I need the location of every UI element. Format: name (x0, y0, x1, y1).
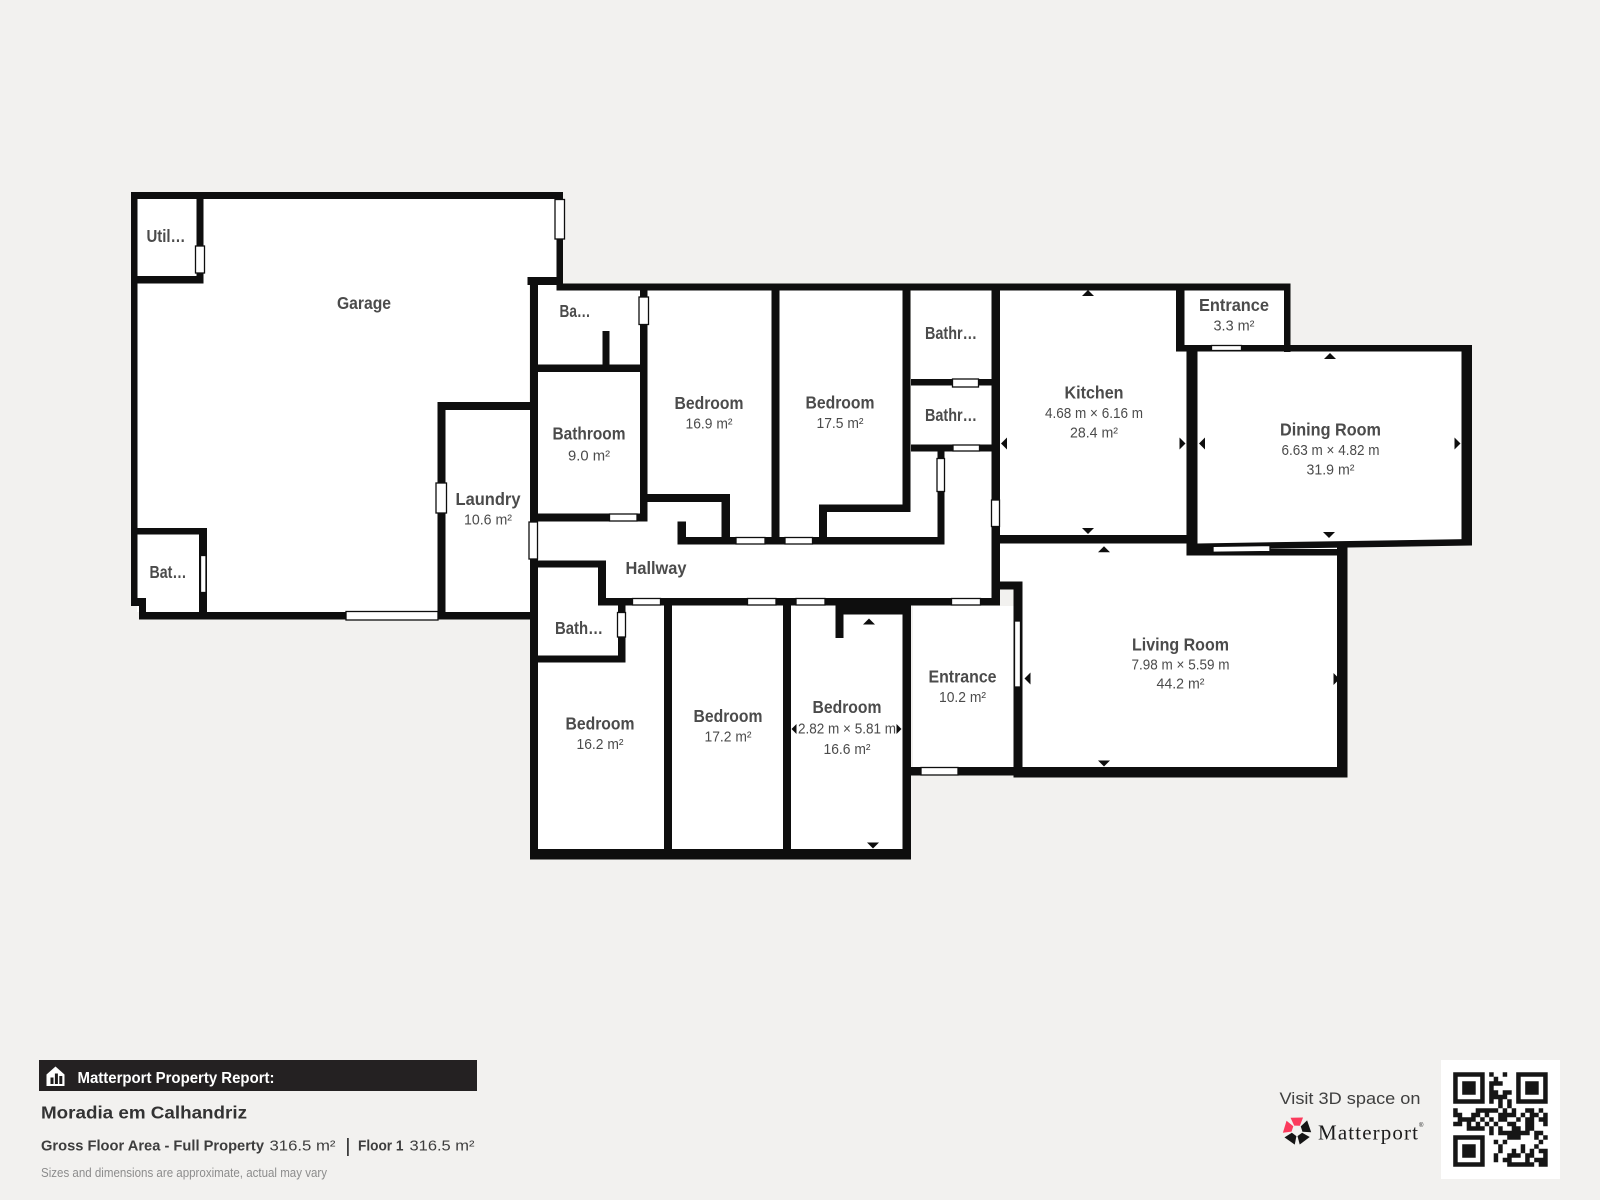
svg-text:316.5 m²: 316.5 m² (270, 1139, 336, 1155)
svg-text:Gross Floor Area - Full Proper: Gross Floor Area - Full Property (41, 1139, 264, 1155)
svg-text:16.9 m²: 16.9 m² (686, 417, 733, 433)
svg-text:28.4 m²: 28.4 m² (1070, 426, 1118, 442)
svg-text:316.5 m²: 316.5 m² (410, 1139, 475, 1155)
svg-text:Living Room: Living Room (1132, 635, 1229, 655)
svg-text:4.68 m × 6.16 m: 4.68 m × 6.16 m (1045, 406, 1143, 422)
svg-text:Kitchen: Kitchen (1065, 383, 1124, 403)
svg-text:Bathr…: Bathr… (925, 323, 977, 343)
svg-text:Hallway: Hallway (626, 558, 687, 578)
svg-text:®: ® (1419, 1122, 1424, 1129)
svg-text:Entrance: Entrance (1199, 295, 1269, 315)
svg-text:9.0 m²: 9.0 m² (568, 449, 610, 465)
svg-text:Bat…: Bat… (150, 562, 187, 582)
svg-text:6.63 m × 4.82 m: 6.63 m × 4.82 m (1282, 443, 1380, 459)
svg-text:17.2 m²: 17.2 m² (705, 730, 752, 746)
svg-text:Bath…: Bath… (555, 618, 603, 638)
svg-text:Sizes and dimensions are appro: Sizes and dimensions are approximate, ac… (41, 1166, 328, 1180)
svg-text:Bedroom: Bedroom (806, 393, 875, 413)
svg-text:31.9 m²: 31.9 m² (1307, 463, 1355, 479)
svg-text:44.2 m²: 44.2 m² (1157, 677, 1205, 693)
svg-text:Bathroom: Bathroom (553, 424, 626, 444)
svg-text:7.98 m × 5.59 m: 7.98 m × 5.59 m (1132, 658, 1230, 674)
svg-text:16.6 m²: 16.6 m² (824, 742, 871, 758)
svg-text:17.5 m²: 17.5 m² (817, 416, 864, 432)
svg-text:10.6 m²: 10.6 m² (464, 513, 512, 529)
svg-text:Entrance: Entrance (929, 667, 997, 687)
svg-text:Garage: Garage (337, 293, 391, 313)
svg-text:3.3 m²: 3.3 m² (1214, 319, 1255, 335)
svg-text:Laundry: Laundry (456, 489, 521, 509)
svg-text:Matterport Property Report:: Matterport Property Report: (78, 1070, 275, 1087)
svg-text:Util…: Util… (147, 226, 186, 246)
svg-text:Bathr…: Bathr… (925, 405, 977, 425)
svg-text:Matterport: Matterport (1318, 1121, 1418, 1145)
svg-text:Moradia em Calhandriz: Moradia em Calhandriz (41, 1103, 247, 1123)
svg-text:16.2 m²: 16.2 m² (577, 737, 624, 753)
svg-text:Floor 1: Floor 1 (358, 1139, 404, 1155)
svg-text:10.2 m²: 10.2 m² (939, 690, 986, 706)
svg-text:Bedroom: Bedroom (566, 714, 635, 734)
svg-text:Bedroom: Bedroom (694, 706, 763, 726)
svg-text:2.82 m × 5.81 m: 2.82 m × 5.81 m (798, 722, 896, 738)
svg-text:Bedroom: Bedroom (813, 697, 882, 717)
svg-text:Dining Room: Dining Room (1280, 420, 1381, 440)
svg-text:Bedroom: Bedroom (675, 393, 744, 413)
svg-text:Ba…: Ba… (560, 301, 591, 321)
svg-text:Visit 3D space on: Visit 3D space on (1280, 1090, 1421, 1108)
